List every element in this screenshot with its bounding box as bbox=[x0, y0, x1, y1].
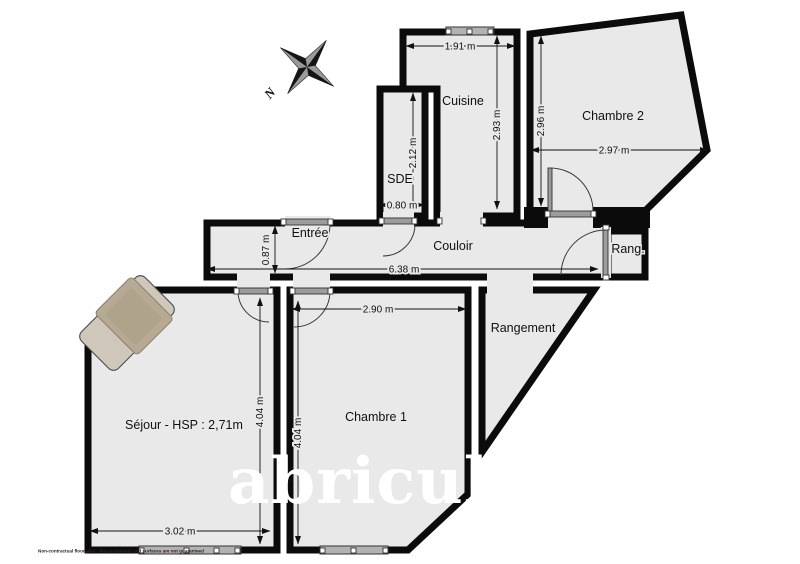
opening-rangement bbox=[487, 272, 533, 295]
room-label-sde: SDE bbox=[387, 172, 413, 186]
watermark-text: abriculteurs bbox=[228, 444, 681, 519]
chambre1-window-icon bbox=[320, 546, 388, 554]
opening-cuisine bbox=[440, 212, 483, 228]
room-label-chambre2: Chambre 2 bbox=[582, 109, 644, 123]
room-label-cuisine: Cuisine bbox=[442, 94, 484, 108]
dimension-label: 1.91 m bbox=[445, 42, 476, 53]
room-label-sejour: Séjour - HSP : 2,71m bbox=[125, 418, 243, 432]
floor-plan-canvas: 1.91 m 2.93 m 2.96 m 2.97 m 2.12 m 0.80 … bbox=[0, 0, 800, 564]
room-label-entree: Entrée bbox=[292, 226, 329, 240]
dimension-label: 2.93 m bbox=[492, 110, 503, 141]
dimension-label: 2.97 m bbox=[599, 146, 630, 157]
footer-disclaimer: Non-contractual floor plan - Measurement… bbox=[38, 549, 204, 554]
compass-rose-icon: N bbox=[260, 21, 353, 113]
dimension-label: 2.96 m bbox=[536, 106, 547, 137]
dimension-label: 6.38 m bbox=[389, 265, 420, 276]
room-label-chambre1: Chambre 1 bbox=[345, 410, 407, 424]
dimension-label: 3.02 m bbox=[165, 527, 196, 538]
cuisine-window-icon bbox=[446, 27, 494, 35]
dimension-label: 0.80 m bbox=[387, 201, 418, 212]
room-label-rang: Rang. bbox=[611, 242, 644, 256]
dimension-label: 0.87 m bbox=[261, 235, 272, 266]
room-label-rangement: Rangement bbox=[491, 321, 556, 335]
room-label-couloir: Couloir bbox=[433, 239, 473, 253]
room-rangement bbox=[482, 290, 594, 452]
dimension-label: 4.04 m bbox=[255, 397, 266, 428]
dimension-label: 2.90 m bbox=[363, 305, 394, 316]
floor-plan: 1.91 m 2.93 m 2.96 m 2.97 m 2.12 m 0.80 … bbox=[0, 0, 800, 564]
dimension-label: 2.12 m bbox=[408, 138, 419, 169]
compass-north-label: N bbox=[260, 84, 279, 102]
